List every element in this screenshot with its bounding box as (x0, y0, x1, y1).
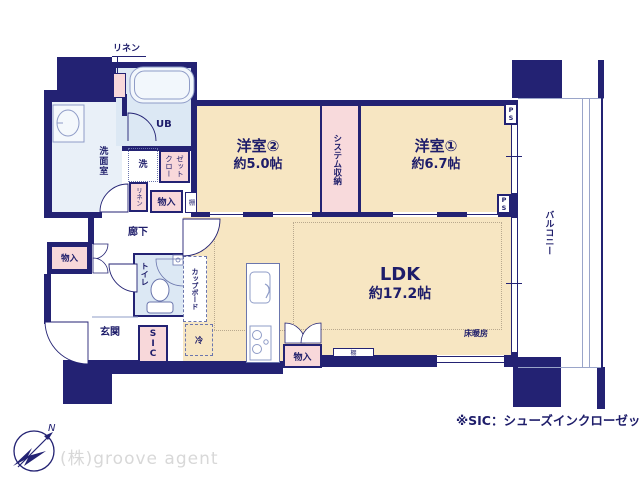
toilet-corner-sink (173, 255, 183, 265)
toilet-bowl (151, 279, 169, 301)
balcony-label: バルコニー (543, 204, 553, 260)
kitchen-sink (250, 272, 270, 303)
linen-top-label: リネン (113, 44, 140, 54)
bedroom2-name: 洋室② (198, 138, 318, 155)
toilet-label: トイレ (140, 258, 149, 290)
linen-leader-drop (117, 57, 118, 73)
door-ldk (183, 219, 220, 256)
footnote: ※SIC：シューズインクローゼット (456, 414, 640, 428)
watermark: (株)groove agent (60, 444, 219, 469)
toilet-tank (147, 302, 173, 313)
washroom-label: 洗面室 (97, 142, 107, 180)
floor-heating-label: 床暖房 (464, 329, 488, 338)
hallway-label: 廊下 (128, 227, 148, 239)
unit-bath-label: UB (156, 119, 172, 131)
door-washroom (100, 184, 128, 212)
bedroom2-size: 約5.0帖 (198, 158, 318, 173)
compass-north-label: N (48, 423, 56, 434)
compass-icon: N (13, 423, 56, 471)
floor-plan: 洗 クロー ゼット リネン 物入 棚 物入 SIC カップボード 冷 物入 棚 … (0, 0, 640, 480)
bedroom1-size: 約6.7帖 (376, 158, 496, 173)
door-storage-left (93, 244, 108, 259)
bedroom1-name: 洋室① (376, 138, 496, 155)
door-storage-ldk (301, 323, 321, 343)
entrance-label: 玄関 (100, 327, 120, 339)
door-entrance (45, 322, 88, 364)
door-bath (128, 113, 156, 141)
system-storage-label: システム収納 (331, 126, 341, 192)
door-storage-left (93, 258, 108, 273)
door-toilet-out (109, 264, 137, 292)
ldk-name: LDK (340, 265, 460, 286)
ldk-size: 約17.2帖 (340, 286, 460, 302)
